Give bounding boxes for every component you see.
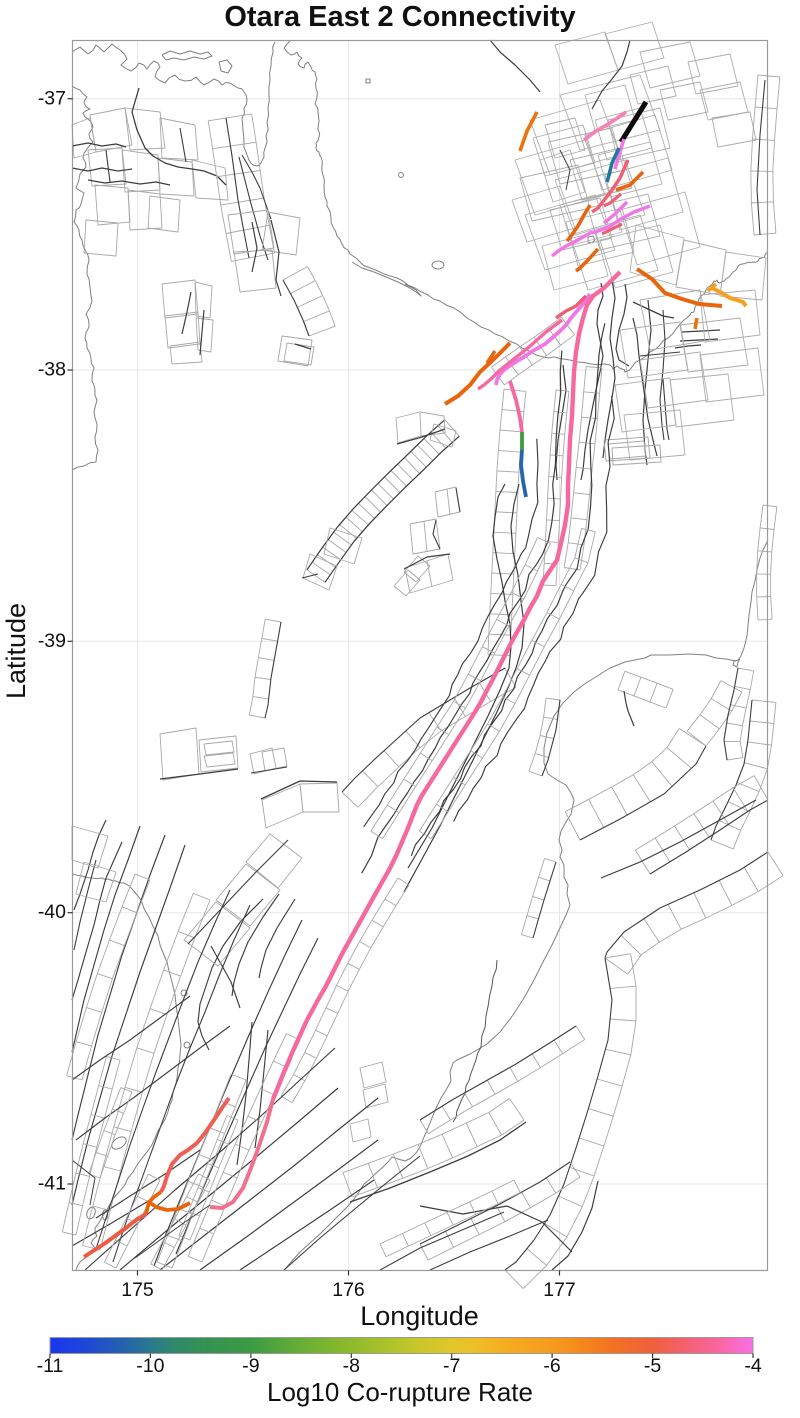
svg-text:-39: -39 [38,630,66,652]
svg-text:177: 177 [543,1279,576,1301]
svg-text:-37: -37 [38,88,66,110]
svg-text:-5: -5 [644,1355,661,1377]
svg-text:-6: -6 [543,1355,560,1377]
svg-text:Longitude: Longitude [360,1301,479,1331]
svg-text:-38: -38 [38,359,66,381]
svg-text:175: 175 [121,1279,154,1301]
svg-text:176: 176 [332,1279,365,1301]
svg-text:-4: -4 [744,1355,761,1377]
svg-text:-40: -40 [38,901,66,923]
svg-text:-8: -8 [343,1355,360,1377]
svg-text:Otara East 2 Connectivity: Otara East 2 Connectivity [224,1,575,33]
svg-text:-41: -41 [38,1173,66,1195]
svg-text:Latitude: Latitude [1,603,31,699]
svg-text:-7: -7 [443,1355,460,1377]
svg-text:-10: -10 [136,1355,164,1377]
svg-text:-11: -11 [37,1355,64,1377]
svg-text:Log10 Co-rupture Rate: Log10 Co-rupture Rate [267,1377,533,1407]
svg-text:-9: -9 [242,1355,259,1377]
